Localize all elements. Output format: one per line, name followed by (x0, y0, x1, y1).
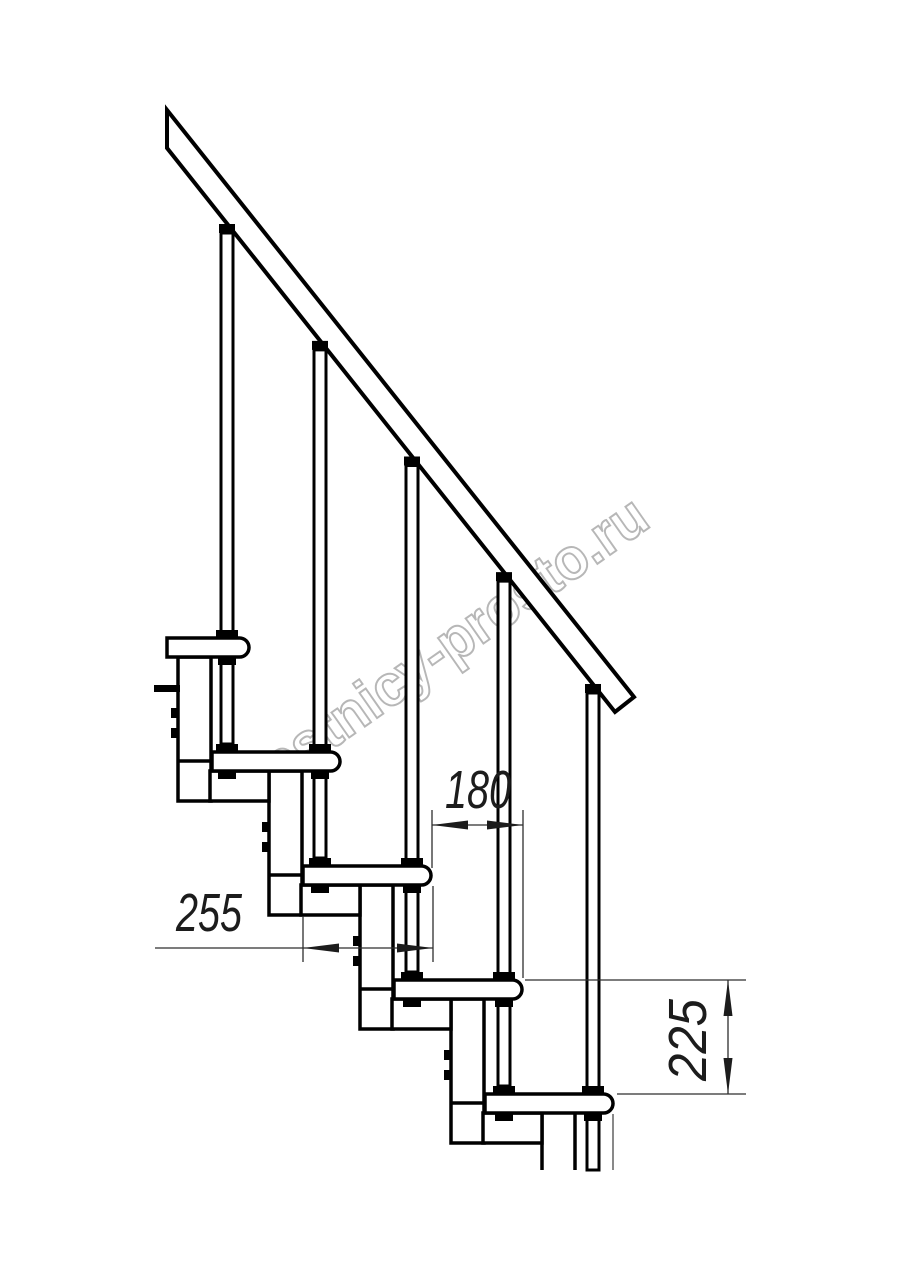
baluster-collar (582, 1086, 604, 1094)
baluster-base-collar (401, 972, 423, 980)
bolt (262, 822, 270, 832)
baluster-shaft (498, 581, 510, 1086)
baluster-base-nut (495, 1113, 513, 1121)
support-column (269, 771, 302, 915)
support-column (451, 999, 484, 1143)
baluster-base-nut (311, 885, 329, 893)
handrail (167, 110, 634, 712)
bolt (353, 956, 361, 966)
baluster-rail-cap (404, 457, 420, 466)
support-column (360, 885, 393, 1029)
tread (167, 638, 249, 657)
baluster-rail-cap (219, 224, 235, 233)
arrowhead (724, 980, 733, 1016)
dimension-tread-depth-label: 255 (175, 883, 242, 943)
dimension-step-run-label: 180 (445, 760, 511, 820)
tread (212, 752, 340, 771)
baluster-nut (584, 1113, 602, 1121)
baluster-base-collar (309, 858, 331, 866)
bolt (444, 1050, 452, 1060)
tread-support-platform (392, 999, 451, 1029)
baluster-shaft (221, 233, 233, 744)
support-column (178, 657, 211, 801)
bolt (262, 842, 270, 852)
baluster-collar (216, 630, 238, 638)
baluster-base-nut (403, 999, 421, 1007)
bolt (171, 728, 179, 738)
baluster-rail-cap (496, 572, 512, 581)
baluster-rail-cap (585, 684, 601, 693)
arrowhead (724, 1058, 733, 1094)
bolt (444, 1070, 452, 1080)
bolt (171, 708, 179, 718)
baluster-nut (311, 771, 329, 779)
baluster-collar (493, 972, 515, 980)
drawing-page: lestnicy-prosto.ru 180 255 225 (0, 0, 914, 1280)
baluster-base-nut (218, 771, 236, 779)
baluster-base-collar (216, 744, 238, 752)
tread (485, 1094, 613, 1113)
dimension-riser-height-label: 225 (658, 998, 718, 1082)
baluster-rail-cap (312, 341, 328, 350)
baluster-shaft (406, 466, 418, 972)
baluster-collar (309, 744, 331, 752)
bolt (353, 936, 361, 946)
baluster-nut (495, 999, 513, 1007)
baluster-nut (218, 657, 236, 665)
baluster-nut (403, 885, 421, 893)
baluster-shaft (314, 350, 326, 858)
cut-platform-stub (154, 685, 180, 692)
staircase-technical-drawing: lestnicy-prosto.ru 180 255 225 (0, 0, 914, 1280)
tread (303, 866, 431, 885)
baluster-collar (401, 858, 423, 866)
tread (394, 980, 522, 999)
tread-support-platform (301, 885, 360, 915)
arrowhead (432, 821, 468, 830)
baluster-base-collar (493, 1086, 515, 1094)
arrowhead (303, 944, 339, 953)
